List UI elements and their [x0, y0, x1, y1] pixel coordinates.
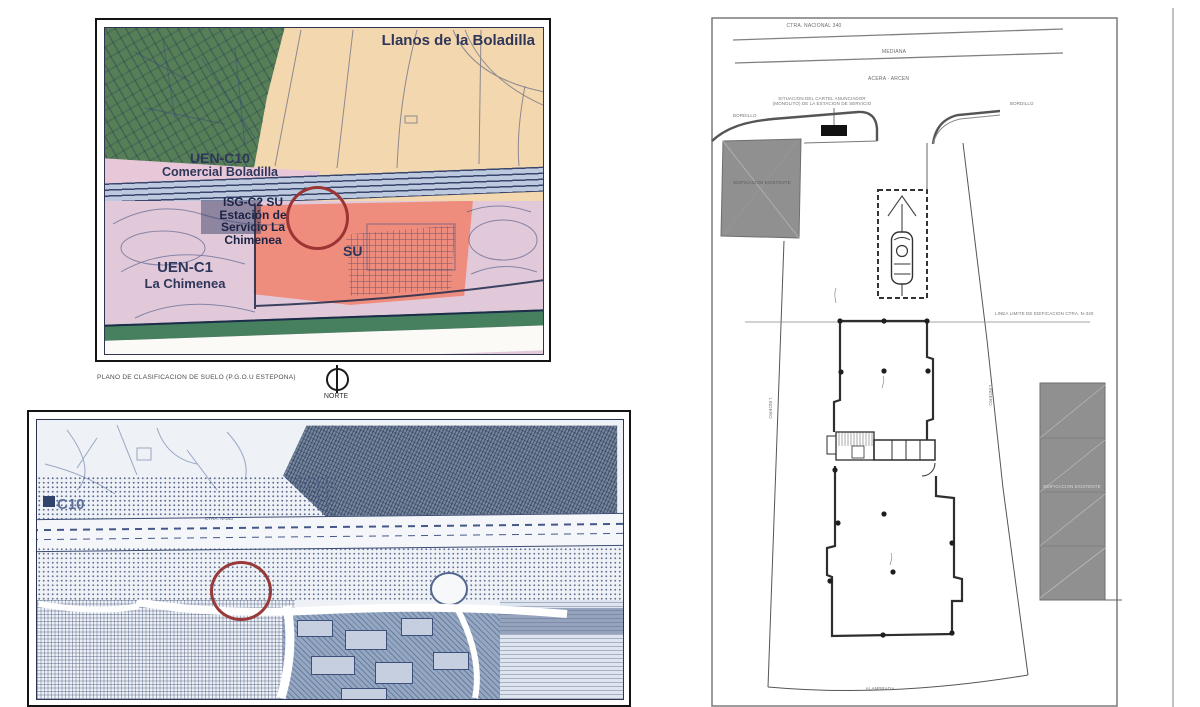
label-uen-c1-name: La Chimenea: [115, 276, 255, 292]
micro-annotations: [835, 288, 892, 565]
north-label: NORTE: [318, 393, 354, 400]
car-top-view: [892, 232, 913, 284]
label-isg-l2: Servicio La: [197, 221, 309, 234]
north-arrow-line: [336, 365, 338, 393]
label-curb-left: BORDILLO: [733, 113, 757, 118]
label-uen-c10-code: UEN-C10: [145, 151, 295, 165]
road-dash-line: [36, 523, 624, 531]
label-isg-c2: ISG-C2 SU Estación de Servicio La Chimen…: [197, 196, 309, 246]
label-boundary-left: LINDERO: [768, 398, 773, 419]
label-uen-c10-name: Comercial Boladilla: [145, 165, 295, 179]
white-roads: [37, 600, 623, 700]
label-road-name: CTRA. NACIONAL 340: [776, 24, 852, 30]
label-existing-bldg-right: EDIFICACION EXISTENTE: [1042, 484, 1102, 489]
site-highlight-circle: [210, 561, 272, 621]
north-arrow-icon: [326, 368, 349, 391]
label-su: SU: [343, 243, 362, 259]
label-llanos-boladilla: Llanos de la Boladilla: [382, 32, 535, 49]
existing-building-right: [1040, 383, 1122, 600]
site-plan-drawing: [700, 8, 1180, 707]
urban-fabric: [37, 600, 623, 699]
cadastral-map: C10 CTRA. N-340: [36, 419, 624, 700]
label-uen-c1: UEN-C1 La Chimenea: [115, 260, 255, 292]
zoning-map-frame: Llanos de la Boladilla UEN-C10 Comercial…: [95, 18, 551, 362]
small-building-mark: [43, 496, 55, 507]
label-sign-note-l2: (MONOLITO) DE LA ESTACION DE SERVICIO: [762, 101, 882, 106]
label-shoulder: ACERA - ARCEN: [868, 77, 909, 83]
label-isg-l3: Chimenea: [197, 234, 309, 247]
label-sign-note: SITUACION DEL CARTEL ANUNCIADOR (MONOLIT…: [762, 96, 882, 106]
label-curb-right: BORDILLO: [1010, 101, 1034, 106]
label-c10: C10: [57, 496, 85, 513]
label-fence: ALAMBRADA: [845, 686, 915, 691]
zoning-map-caption: PLANO DE CLASIFICACION DE SUELO (P.G.O.U…: [97, 374, 296, 381]
zoning-map: Llanos de la Boladilla UEN-C10 Comercial…: [104, 27, 544, 355]
orchard-dots-lower: [37, 547, 623, 600]
label-median: MEDIANA: [882, 50, 906, 56]
label-uen-c10: UEN-C10 Comercial Boladilla: [145, 151, 295, 179]
station-floor-plan: [827, 321, 962, 636]
road-dash-line: [36, 533, 624, 541]
existing-building-left: [721, 139, 801, 238]
label-build-line: LINEA LIMITE DE EDIFICACION CTRA. N-340: [995, 311, 1093, 316]
label-uen-c1-code: UEN-C1: [115, 260, 255, 276]
label-road-n340: CTRA. N-340: [205, 516, 233, 521]
cadastral-map-frame: C10 CTRA. N-340: [27, 410, 631, 707]
label-boundary-right: LINDERO: [988, 385, 993, 406]
label-existing-bldg-left: EDIFICACION EXISTENTE: [727, 180, 797, 185]
label-isg-code: ISG-C2 SU: [197, 196, 309, 209]
